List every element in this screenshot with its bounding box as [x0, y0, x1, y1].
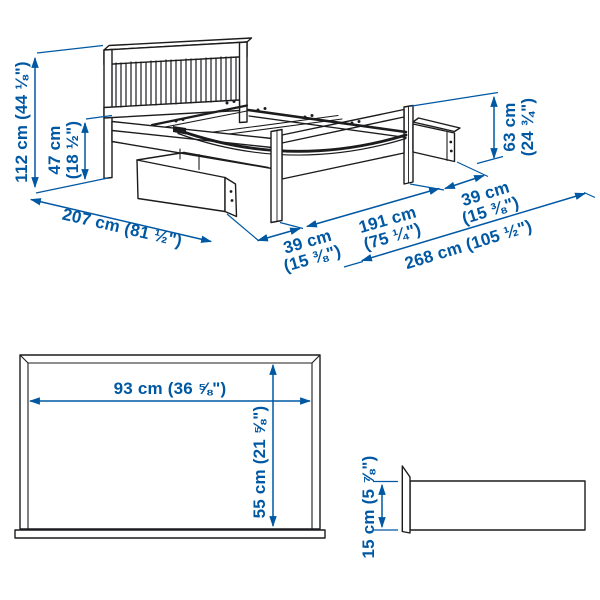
dimension-box-side-height: 15 cm (5 ⅞") [359, 455, 398, 558]
front-drawer-front [137, 160, 225, 212]
label-line-metric: 47 cm [45, 125, 64, 174]
box-front-view: 93 cm (36 ⅝") 55 cm (21 ⅝") [15, 355, 325, 538]
dimension-label-box-side-height: 15 cm (5 ⅞") [359, 455, 378, 558]
dimension-label-box-height: 55 cm (21 ⅝") [250, 406, 269, 519]
side-rail [112, 122, 272, 169]
witness-line [37, 46, 103, 54]
product-dimension-diagram: 112 cm (44 ⅛") 47 cm(18 ½") 207 cm (81 ½… [0, 0, 600, 600]
dimension-label-total-height: 112 cm (44 ⅛") [12, 61, 31, 182]
box-side-view: 15 cm (5 ⅞") [359, 455, 585, 558]
box-side-rail [410, 481, 585, 530]
screw-dot [264, 107, 267, 110]
screw-dot [304, 116, 307, 119]
bed-isometric-drawing [104, 38, 460, 223]
screw-dot [231, 199, 234, 202]
screw-dot [351, 122, 354, 125]
screw-dot [449, 141, 452, 144]
label-line-imperial: (24 ¾") [518, 98, 537, 157]
dimension-length: 207 cm (81 ½") [31, 200, 211, 251]
witness-line [227, 214, 259, 241]
witness-line [412, 93, 498, 107]
label-line-metric: 63 cm [500, 102, 519, 151]
witness-line [457, 162, 488, 177]
side-storage-drawer [413, 118, 460, 162]
witness-line [584, 193, 595, 198]
screw-dot [358, 120, 361, 123]
witness-line [280, 223, 303, 229]
witness-line [344, 262, 363, 268]
dimension-label-under-bed-height: 47 cm(18 ½") [45, 121, 82, 180]
dimension-label-footboard-height: 63 cm(24 ¾") [500, 98, 537, 157]
screw-dot [233, 100, 236, 103]
screw-dot [230, 190, 233, 193]
headboard-slats [116, 57, 236, 107]
front-drawer-end-cap [225, 178, 237, 217]
dimension-side-drawer-extension: 39 cm(15 ⅜") [445, 162, 521, 228]
screw-dot [311, 114, 314, 117]
dimension-label-length: 207 cm (81 ½") [60, 205, 184, 251]
screw-dot [257, 109, 260, 112]
near-foot-leg [271, 130, 282, 223]
screw-dot [182, 118, 185, 121]
dimension-label-width: 191 cm(75 ¼") [357, 202, 424, 253]
box-front-base-strip [15, 530, 325, 538]
screw-dot [226, 102, 229, 105]
dimension-box-height: 55 cm (21 ⅝") [250, 365, 273, 526]
dimension-box-width: 93 cm (36 ⅝") [30, 379, 310, 401]
headboard-bottom-rail [104, 100, 240, 118]
headboard-right-leg [240, 42, 248, 123]
box-side-flange [402, 466, 410, 533]
witness-line [477, 157, 503, 164]
dimension-label-box-width: 93 cm (36 ⅝") [114, 379, 227, 398]
dimension-front-drawer-extension: 39 cm(15 ⅜") [227, 214, 343, 276]
screw-dot [450, 150, 453, 153]
dimension-under-bed-height: 47 cm(18 ½") [45, 116, 112, 180]
label-line-imperial: (18 ½") [63, 121, 82, 180]
screw-dot [175, 120, 178, 123]
dimension-label-side-drawer-extension: 39 cm(15 ⅜") [455, 176, 522, 228]
front-drawer-side-top-edge [137, 153, 184, 161]
diagram-svg: 112 cm (44 ⅛") 47 cm(18 ½") 207 cm (81 ½… [0, 0, 600, 600]
